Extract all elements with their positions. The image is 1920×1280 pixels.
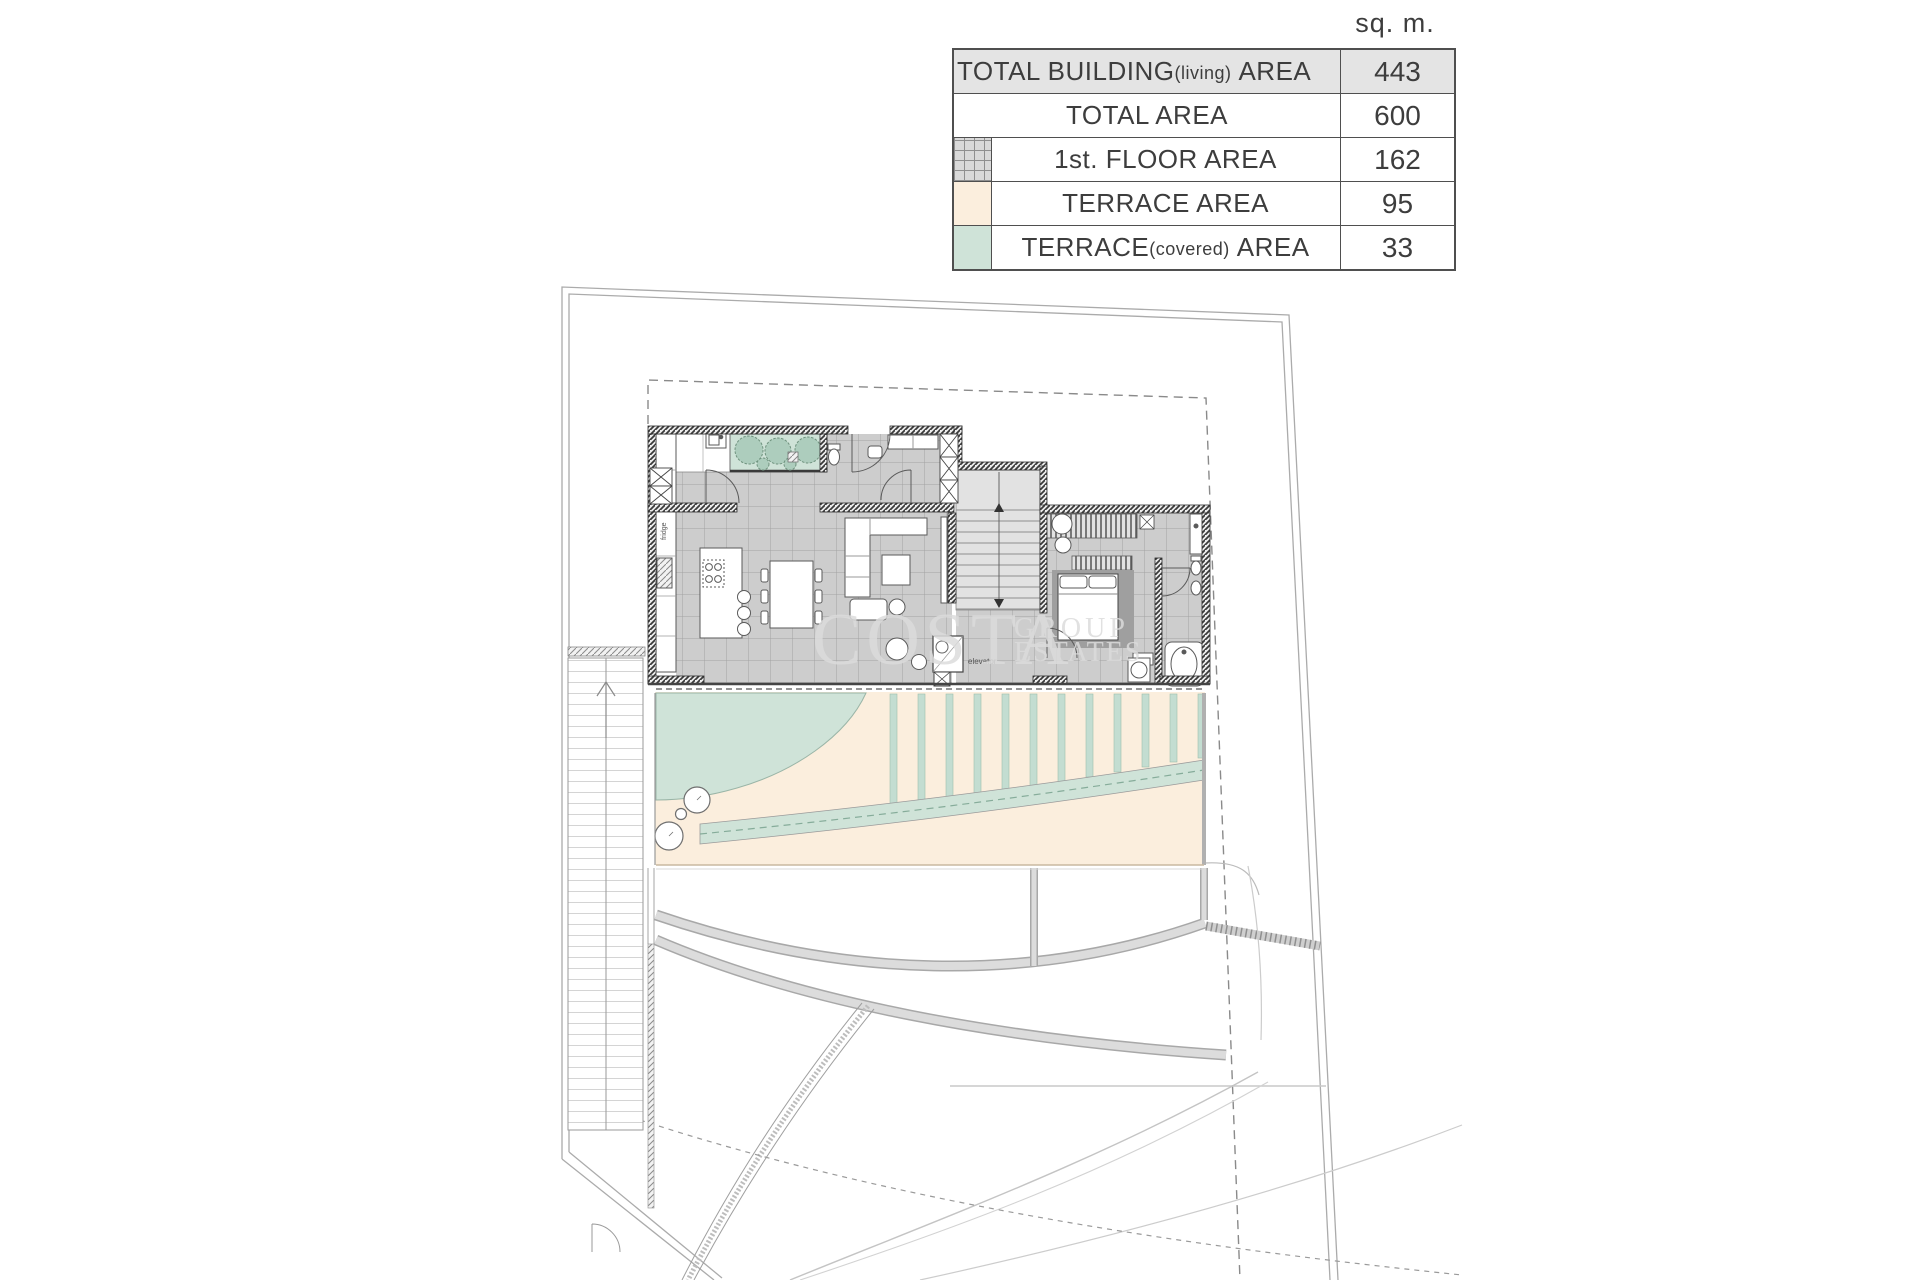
vanity <box>1190 514 1203 554</box>
row-value: 600 <box>1340 94 1454 137</box>
oven <box>657 558 672 588</box>
terrace-area <box>655 692 1205 869</box>
table-row-terrace-covered: TERRACE(covered)AREA 33 <box>954 225 1454 269</box>
row-label-tail: AREA <box>1238 56 1311 87</box>
basin <box>868 446 882 458</box>
gate-door-arc <box>592 1224 620 1252</box>
row-label-sub: (living) <box>1174 60 1231 84</box>
units-header: sq. m. <box>1338 8 1452 39</box>
row-value: 95 <box>1340 182 1454 225</box>
table-row-total-building: TOTAL BUILDING(living)AREA 443 <box>954 50 1454 93</box>
roads <box>640 863 1462 1280</box>
row-label: 1st. FLOOR AREA <box>1054 144 1277 175</box>
row-label: TERRACE <box>1021 232 1149 263</box>
row-value: 443 <box>1340 50 1454 93</box>
row-label: TOTAL BUILDING <box>957 56 1174 87</box>
kitchen-island <box>700 548 742 638</box>
row-label-tail: AREA <box>1237 232 1310 263</box>
stool <box>738 607 751 620</box>
area-summary-table: TOTAL BUILDING(living)AREA 443 TOTAL ARE… <box>952 48 1456 271</box>
row-label: TOTAL AREA <box>1066 100 1228 131</box>
table-row-first-floor: 1st. FLOOR AREA 162 <box>954 137 1454 181</box>
dining-table <box>770 561 813 628</box>
retaining-wall-hatch <box>568 647 645 656</box>
toilet <box>1191 561 1201 575</box>
watermark-sub2: ESTATES <box>1014 637 1142 668</box>
interior-staircase <box>956 470 1040 610</box>
retaining-wall-strip <box>648 868 654 1208</box>
stool <box>738 623 751 636</box>
toilet <box>829 449 840 465</box>
row-label: TERRACE AREA <box>1062 188 1269 219</box>
table-row-total-area: TOTAL AREA 600 <box>954 93 1454 137</box>
table-row-terrace: TERRACE AREA 95 <box>954 181 1454 225</box>
row-label-sub: (covered) <box>1149 236 1230 260</box>
stool <box>738 591 751 604</box>
wardrobe <box>1072 556 1132 570</box>
floor-plan-page: elevator <box>0 0 1920 1280</box>
tv-console <box>941 517 947 603</box>
armchair <box>1052 514 1072 534</box>
planter <box>730 434 827 472</box>
row-value: 33 <box>1340 226 1454 269</box>
fridge-label: fridge <box>661 522 668 540</box>
row-value: 162 <box>1340 138 1454 181</box>
coffee-table <box>882 555 910 585</box>
ottoman <box>1055 537 1071 553</box>
bidet <box>1191 581 1201 595</box>
